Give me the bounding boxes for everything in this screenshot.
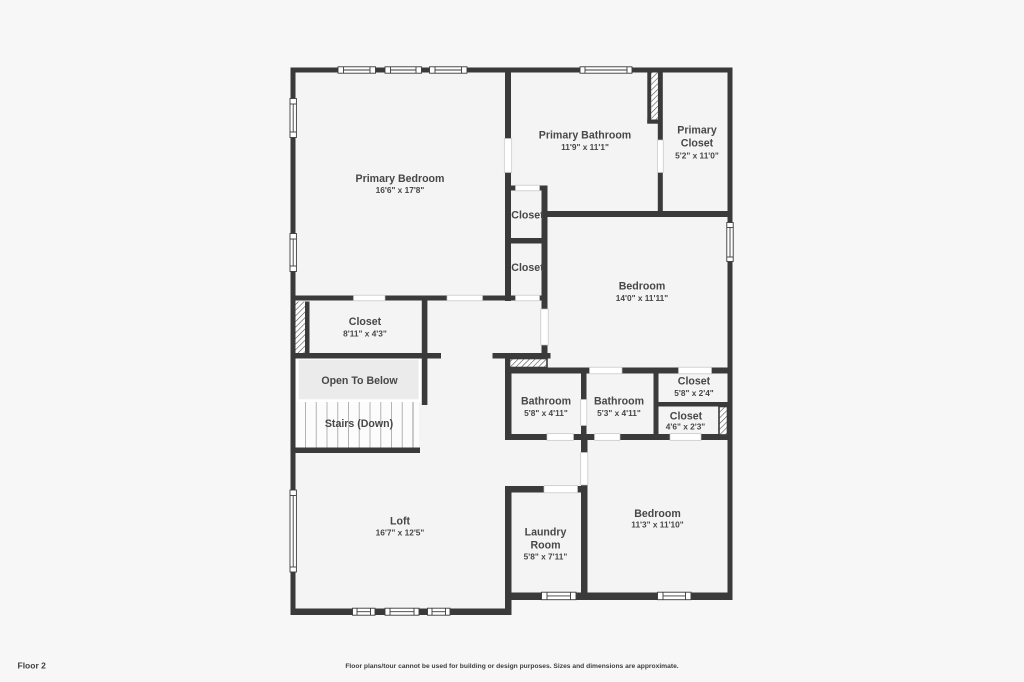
svg-text:16'7" x 12'5": 16'7" x 12'5" (376, 528, 425, 538)
svg-text:Bedroom: Bedroom (634, 508, 681, 520)
svg-text:Closet: Closet (511, 210, 544, 222)
svg-text:11'3" x 11'10": 11'3" x 11'10" (631, 520, 683, 530)
svg-text:Floor 2: Floor 2 (18, 661, 47, 671)
svg-text:Floor plans/tour cannot be use: Floor plans/tour cannot be used for buil… (345, 663, 678, 670)
svg-text:Loft: Loft (390, 516, 410, 528)
svg-text:5'8" x 4'11": 5'8" x 4'11" (524, 408, 568, 418)
svg-text:Bathroom: Bathroom (521, 396, 571, 408)
svg-text:Laundry: Laundry (525, 527, 567, 539)
svg-text:Bedroom: Bedroom (619, 281, 666, 293)
svg-text:5'3" x 4'11": 5'3" x 4'11" (597, 408, 641, 418)
svg-text:Bathroom: Bathroom (594, 396, 644, 408)
svg-text:Stairs (Down): Stairs (Down) (325, 418, 393, 430)
svg-text:11'9" x 11'1": 11'9" x 11'1" (561, 142, 609, 152)
svg-text:4'6" x 2'3": 4'6" x 2'3" (666, 422, 706, 432)
svg-text:5'8" x 2'4": 5'8" x 2'4" (674, 388, 714, 398)
svg-text:Primary Bathroom: Primary Bathroom (539, 130, 631, 142)
svg-text:Closet: Closet (678, 376, 711, 388)
svg-text:Room: Room (530, 540, 560, 552)
svg-text:5'8" x 7'11": 5'8" x 7'11" (524, 552, 568, 562)
svg-text:Closet: Closet (349, 316, 382, 328)
svg-text:16'6" x 17'8": 16'6" x 17'8" (376, 185, 425, 195)
svg-text:14'0" x 11'11": 14'0" x 11'11" (616, 293, 668, 303)
svg-text:Closet: Closet (681, 138, 714, 150)
svg-text:Primary Bedroom: Primary Bedroom (356, 173, 445, 185)
svg-text:Open To Below: Open To Below (321, 375, 398, 387)
svg-text:5'2" x 11'0": 5'2" x 11'0" (675, 151, 719, 161)
svg-text:Closet: Closet (511, 262, 544, 274)
svg-text:8'11" x 4'3": 8'11" x 4'3" (343, 329, 387, 339)
svg-text:Primary: Primary (677, 125, 717, 137)
